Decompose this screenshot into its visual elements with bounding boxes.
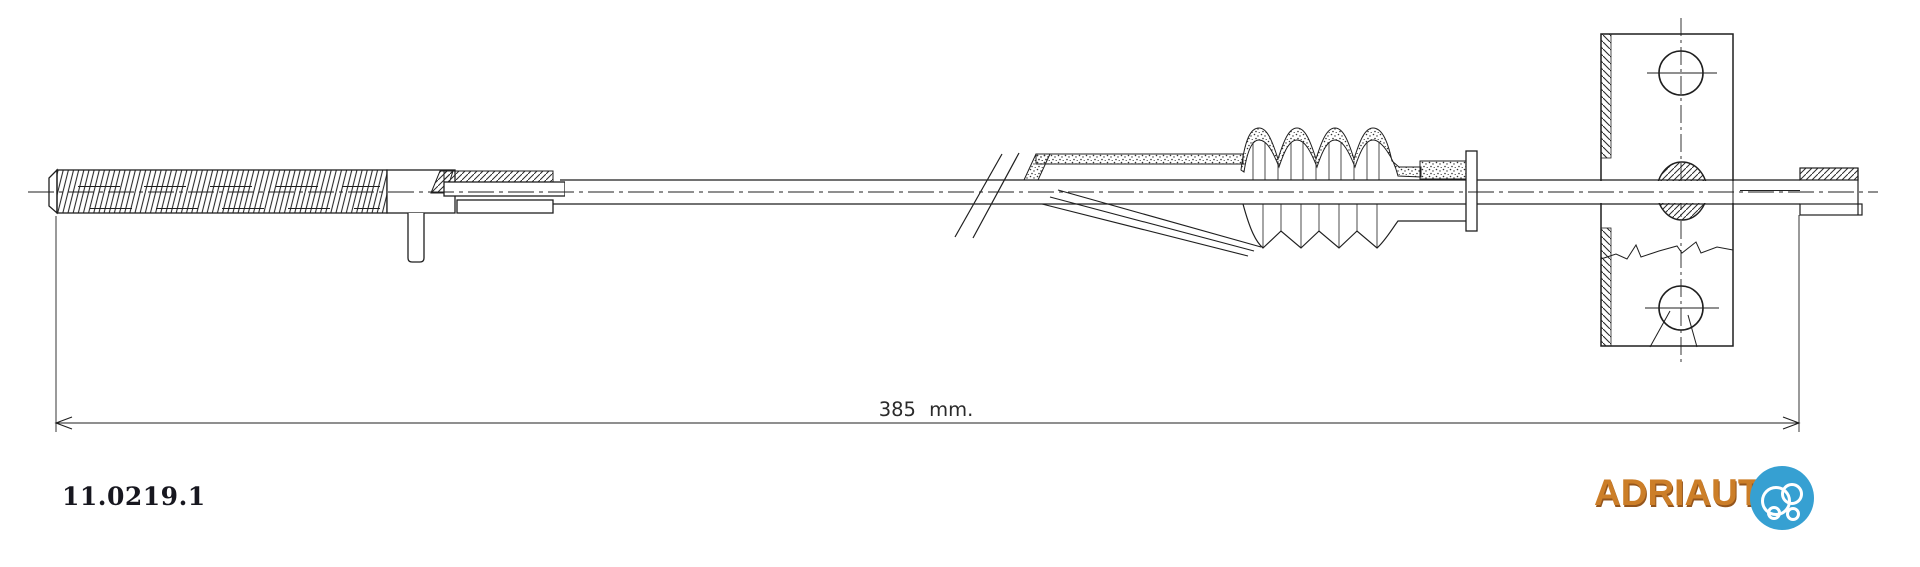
adjuster-thread-strip bbox=[444, 171, 553, 182]
technical-drawing-page: 385 mm. 11.0219.1 ADRIAUT bbox=[0, 0, 1920, 567]
brand-badge bbox=[1750, 466, 1814, 530]
bracket-edge-hatch-top bbox=[1601, 34, 1611, 158]
bracket-edge-hatch-bottom bbox=[1601, 228, 1611, 346]
conduit-strip bbox=[1036, 154, 1243, 164]
dimension-annotation: 385 mm. bbox=[56, 215, 1799, 432]
flange-washer bbox=[1466, 151, 1477, 231]
boot-lower-fold-lines bbox=[1263, 204, 1377, 247]
adjuster-pin bbox=[408, 213, 424, 262]
end-fitting-thread bbox=[1800, 168, 1858, 180]
conduit-section bbox=[1024, 154, 1243, 180]
brand-wordmark: ADRIAUT bbox=[1594, 474, 1760, 511]
end-fitting-lip bbox=[1800, 204, 1862, 215]
bubble-car-logo-icon bbox=[1750, 466, 1814, 530]
adjuster-fitting bbox=[387, 170, 565, 262]
part-number: 11.0219.1 bbox=[62, 483, 206, 511]
brand-logo: ADRIAUT bbox=[1594, 474, 1760, 511]
boot-end-collar bbox=[1420, 161, 1466, 179]
boot-lower-outline bbox=[1243, 204, 1466, 248]
bellows-band bbox=[1241, 128, 1421, 177]
dimension-label: 385 mm. bbox=[879, 398, 974, 421]
